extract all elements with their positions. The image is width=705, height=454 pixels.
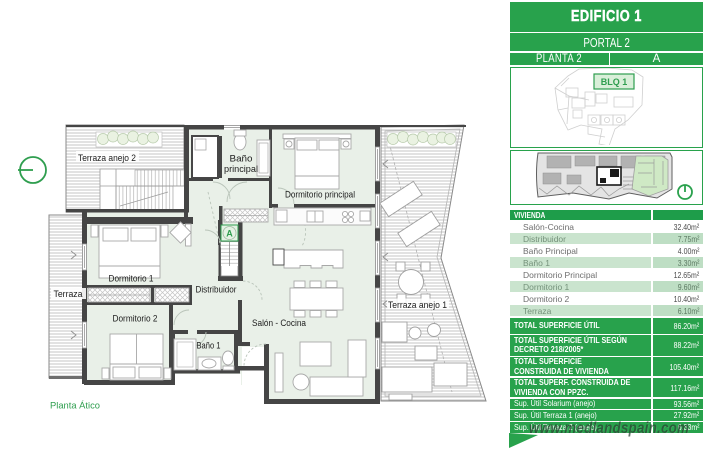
svg-text:Salón - Cocina: Salón - Cocina <box>252 318 306 328</box>
svg-text:Terraza: Terraza <box>54 289 83 299</box>
svg-text:Dormitorio 1: Dormitorio 1 <box>109 274 154 284</box>
svg-text:Dormitorio 2: Dormitorio 2 <box>113 314 158 324</box>
svg-text:BLQ 1: BLQ 1 <box>601 77 628 87</box>
svg-text:Planta Ático: Planta Ático <box>50 401 100 412</box>
svg-text:Distribuidor: Distribuidor <box>196 285 237 295</box>
svg-text:Terraza anejo 1: Terraza anejo 1 <box>388 300 447 310</box>
svg-text:Baño 1: Baño 1 <box>197 341 221 351</box>
svg-text:Terraza anejo 2: Terraza anejo 2 <box>78 153 136 163</box>
svg-text:A: A <box>226 229 233 239</box>
svg-text:Dormitorio principal: Dormitorio principal <box>285 190 355 200</box>
svg-text:principal: principal <box>224 164 258 174</box>
svg-text:Baño: Baño <box>230 154 253 164</box>
